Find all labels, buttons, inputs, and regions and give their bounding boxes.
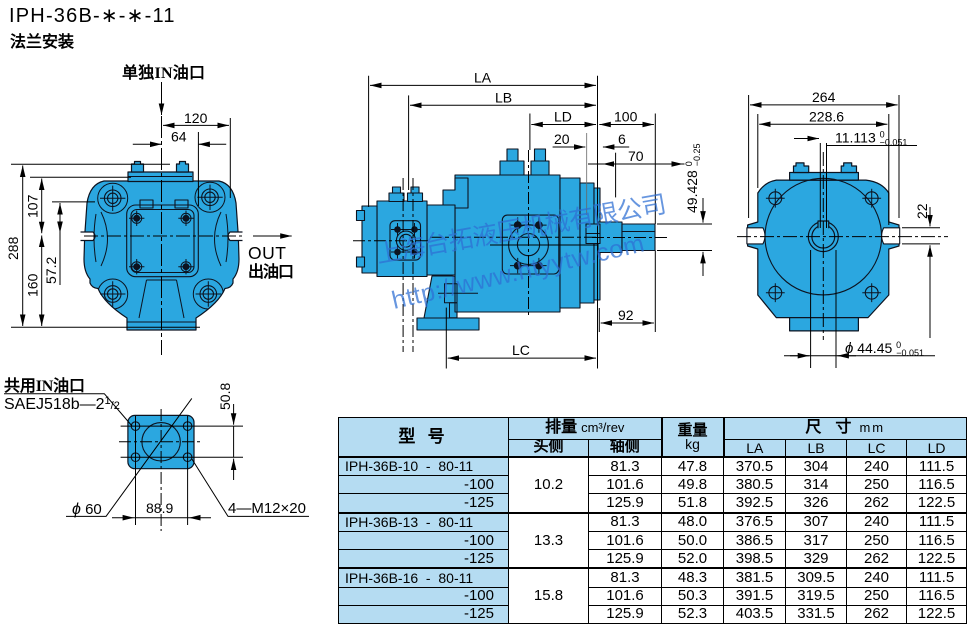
svg-text:SAEJ518b—21/2: SAEJ518b—21/2 xyxy=(4,395,120,413)
svg-text:LC: LC xyxy=(512,342,530,358)
svg-text:88.9: 88.9 xyxy=(146,500,173,516)
svg-text:57.2: 57.2 xyxy=(43,257,59,284)
svg-text:70: 70 xyxy=(628,148,644,164)
svg-text:单独IN油口: 单独IN油口 xyxy=(122,63,205,82)
svg-text:264: 264 xyxy=(812,89,836,105)
svg-text:50.8: 50.8 xyxy=(217,383,233,410)
svg-text:22: 22 xyxy=(914,203,930,219)
svg-text:64: 64 xyxy=(171,129,187,145)
svg-text:6: 6 xyxy=(618,131,626,147)
svg-text:49.428 0−0.25: 49.428 0−0.25 xyxy=(684,143,702,213)
svg-text:出油口: 出油口 xyxy=(248,262,294,281)
svg-text:OUT: OUT xyxy=(248,243,286,263)
svg-text:ϕ 44.45 0−0.051: ϕ 44.45 0−0.051 xyxy=(845,340,924,358)
svg-text:LB: LB xyxy=(495,90,512,106)
svg-text:100: 100 xyxy=(614,109,638,125)
svg-text:20: 20 xyxy=(554,131,570,147)
svg-text:288: 288 xyxy=(5,236,21,260)
svg-text:4—M12×20: 4—M12×20 xyxy=(228,500,306,517)
svg-text:228.6: 228.6 xyxy=(809,108,844,124)
svg-text:共用IN油口: 共用IN油口 xyxy=(4,376,85,395)
svg-text:LA: LA xyxy=(474,70,492,86)
svg-text:107: 107 xyxy=(25,194,41,218)
svg-text:120: 120 xyxy=(184,110,208,126)
svg-text:ϕ 60: ϕ 60 xyxy=(72,501,102,518)
svg-text:160: 160 xyxy=(25,273,41,297)
svg-text:11.113 0−0.051: 11.113 0−0.051 xyxy=(835,130,907,148)
svg-text:92: 92 xyxy=(618,307,634,323)
svg-text:LD: LD xyxy=(554,109,572,125)
